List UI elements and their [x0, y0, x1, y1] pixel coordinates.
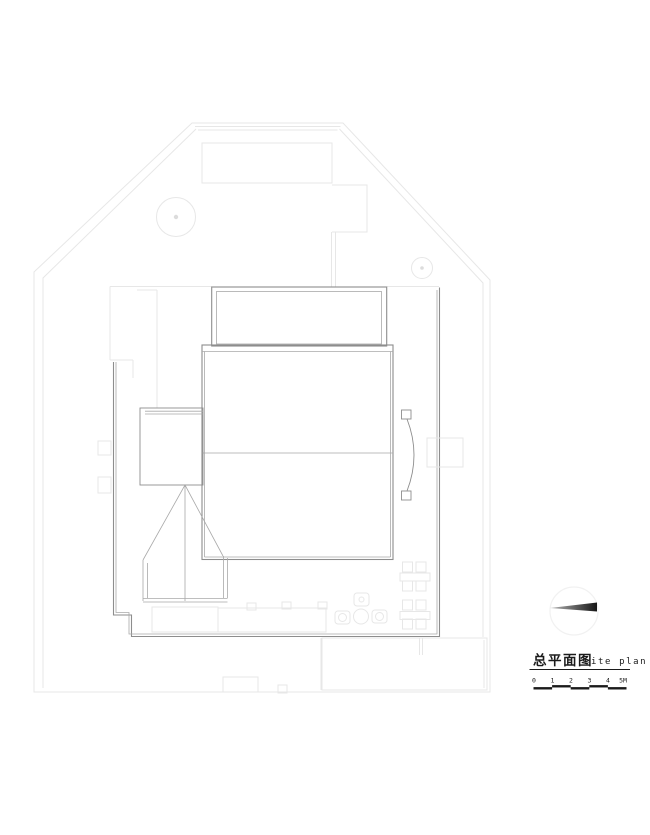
outdoor-furniture: [335, 593, 387, 624]
equipment-pad: [427, 438, 463, 467]
building-west-room: [140, 408, 203, 485]
building-north-block: [212, 287, 387, 346]
trees: [157, 198, 433, 279]
scale-label: 4: [606, 677, 610, 685]
gate-post: [98, 441, 111, 455]
site-boundary: [34, 123, 490, 692]
benches: [152, 602, 327, 632]
north-arrow-icon: [550, 587, 598, 635]
drawing-title-en: site plan: [584, 657, 647, 667]
scale-label: 0: [532, 677, 536, 685]
terrace-boundary: [98, 288, 440, 637]
scale-label: 3: [588, 677, 592, 685]
hip-roof: [143, 485, 223, 601]
gate-post: [98, 477, 111, 493]
title-block: 总平面图 site plan: [530, 652, 648, 670]
site-plan-drawing: 总平面图 site plan 0 1 2 3 4 5M: [0, 0, 650, 835]
scale-label: 1: [551, 677, 555, 685]
scale-bar: 0 1 2 3 4 5M: [532, 677, 627, 690]
scale-label: 5M: [619, 677, 627, 685]
site-plan-sheet: 总平面图 site plan 0 1 2 3 4 5M: [0, 0, 650, 835]
curved-wall: [402, 410, 415, 500]
scale-label: 2: [569, 677, 573, 685]
driveway: [223, 638, 487, 693]
dining-tables: [400, 562, 430, 629]
building-main-block: [202, 345, 393, 560]
